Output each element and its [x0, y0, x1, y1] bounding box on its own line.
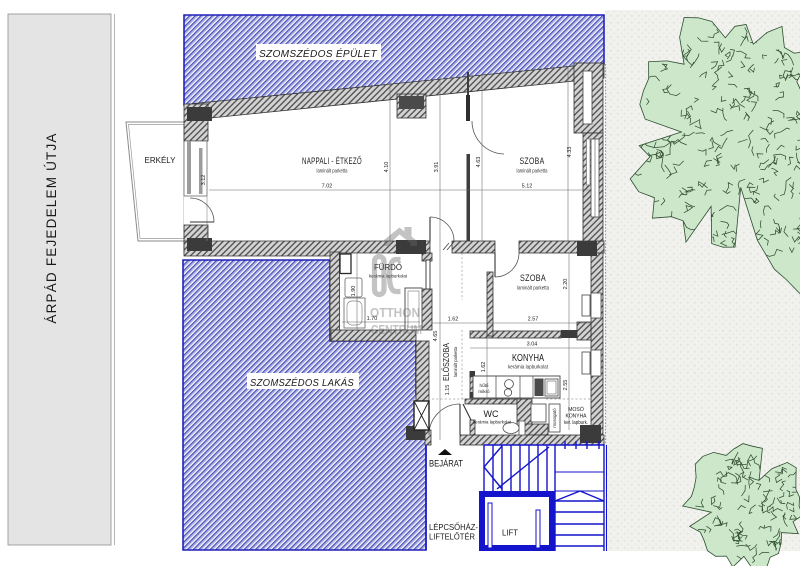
svg-text:SZOBA: SZOBA [520, 156, 545, 167]
svg-text:SZOMSZÉDOS LAKÁS: SZOMSZÉDOS LAKÁS [250, 376, 354, 389]
svg-text:ERKÉLY: ERKÉLY [145, 155, 176, 165]
svg-text:4.63: 4.63 [476, 157, 482, 168]
svg-text:3.04: 3.04 [527, 342, 538, 348]
svg-text:4.10: 4.10 [384, 162, 390, 173]
svg-text:2.20: 2.20 [563, 279, 569, 290]
svg-text:CENTRUM: CENTRUM [371, 322, 422, 337]
svg-text:2.55: 2.55 [563, 380, 569, 391]
svg-text:1.90: 1.90 [351, 286, 357, 297]
svg-text:NAPPALI - ÉTKEZŐ: NAPPALI - ÉTKEZŐ [302, 156, 362, 167]
svg-text:1.62: 1.62 [481, 362, 487, 373]
svg-text:hűtő: hűtő [480, 383, 489, 388]
svg-text:kerámia lapburkolat: kerámia lapburkolat [508, 365, 549, 371]
svg-text:1.15: 1.15 [445, 385, 451, 396]
svg-text:4.65: 4.65 [433, 331, 439, 342]
svg-text:laminált parketta: laminált parketta [453, 347, 458, 377]
svg-text:ELŐSZOBA: ELŐSZOBA [441, 343, 451, 381]
svg-text:3.12: 3.12 [201, 175, 207, 186]
svg-text:WC: WC [484, 409, 499, 419]
svg-text:SZOMSZÉDOS ÉPÜLET: SZOMSZÉDOS ÉPÜLET [259, 47, 378, 60]
svg-text:kerámia lapburkolat: kerámia lapburkolat [473, 420, 512, 425]
svg-text:4.33: 4.33 [567, 147, 573, 158]
svg-text:ÁRPÁD FEJEDELEM ÚTJA: ÁRPÁD FEJEDELEM ÚTJA [44, 132, 59, 323]
svg-text:mikró: mikró [478, 389, 490, 394]
svg-text:LIFT: LIFT [502, 528, 518, 538]
svg-text:LIFTELŐTÉR: LIFTELŐTÉR [429, 532, 475, 542]
svg-text:laminált parketta: laminált parketta [317, 169, 348, 175]
svg-text:ker. lapburk.: ker. lapburk. [564, 420, 588, 426]
svg-text:5.12: 5.12 [522, 184, 533, 190]
svg-text:SZOBA: SZOBA [520, 273, 546, 284]
svg-text:7.02: 7.02 [322, 184, 333, 190]
svg-text:MOSÓ: MOSÓ [568, 406, 584, 413]
svg-text:OTTHON: OTTHON [370, 305, 420, 320]
svg-text:2.57: 2.57 [528, 317, 539, 323]
svg-text:KONYHA: KONYHA [566, 414, 588, 420]
svg-text:3.91: 3.91 [434, 162, 440, 173]
svg-text:LÉPCSŐHÁZ-: LÉPCSŐHÁZ- [429, 522, 478, 532]
svg-text:laminált parketta: laminált parketta [517, 286, 549, 292]
svg-text:KONYHA: KONYHA [512, 353, 544, 364]
svg-text:1.62: 1.62 [448, 317, 459, 323]
svg-text:mosogató: mosogató [552, 408, 557, 428]
svg-text:laminált parketta: laminált parketta [517, 169, 548, 175]
svg-text:BEJÁRAT: BEJÁRAT [429, 459, 463, 469]
